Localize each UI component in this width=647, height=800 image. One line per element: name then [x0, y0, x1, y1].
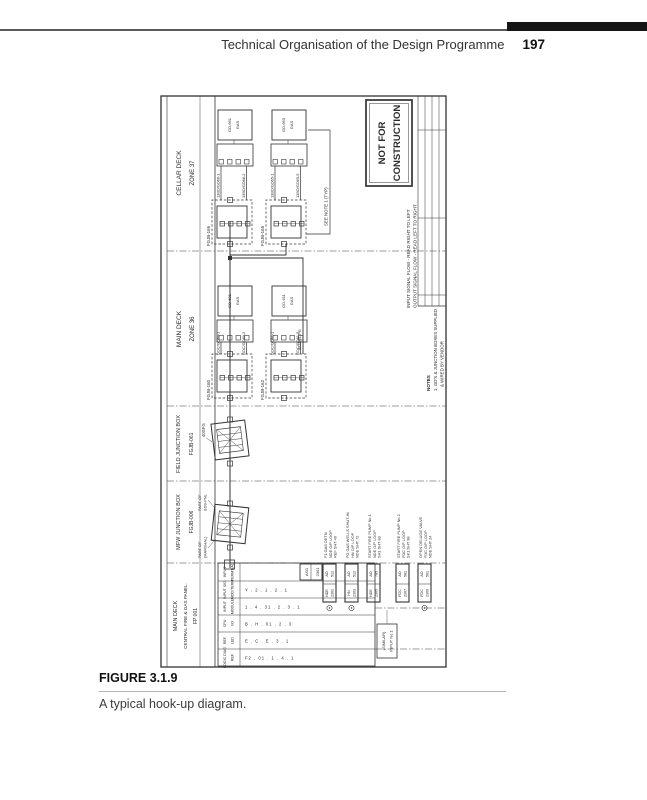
- io-desc: NDE SHT 72: [355, 536, 360, 558]
- notes-line2: & WIRED BY VENDOR: [440, 341, 445, 387]
- col-header: CPU: [223, 619, 227, 627]
- detector-tag: GD-661: [227, 117, 232, 132]
- io-cell: NDE: [369, 589, 373, 597]
- section-main-id: ZONE 36: [190, 316, 196, 342]
- section-field-id: FGJB-061: [189, 432, 195, 455]
- mfw-label-left2: (MARSHAL): [203, 536, 208, 558]
- book-page: Technical Organisation of the Design Pro…: [0, 0, 647, 800]
- similar-input-line1: (SIMILAR): [381, 631, 386, 650]
- jb-label: FGJB-160: [206, 379, 211, 400]
- cable-tag: GDC/GD60-2: [241, 332, 246, 355]
- revision-strip: [418, 96, 446, 306]
- cable-tag: 13BD/GD65-5: [295, 174, 300, 198]
- running-header: Technical Organisation of the Design Pro…: [0, 37, 545, 52]
- col-values: Y . 2 . 1 . 2 . 1: [245, 588, 288, 593]
- see-note-label: SEE NOTE 1 (TYP): [324, 187, 329, 226]
- col-header: LED: [231, 637, 235, 644]
- running-header-title: Technical Organisation of the Design Pro…: [221, 37, 504, 52]
- flow-note-input: INPUT SIGNAL FLOW - READ RIGHT TO LEFT: [406, 209, 411, 308]
- jb-label: FGJB-162: [260, 379, 265, 400]
- section-cellar-id: ZONE 37: [190, 160, 196, 186]
- col-values: 1 . 4 . 31 . 2 . 3 . 1: [245, 605, 301, 610]
- io-cell: 2303: [353, 589, 357, 597]
- caption-rule: [99, 691, 506, 692]
- drawing-border: [161, 96, 446, 667]
- io-cell: FDC: [398, 589, 402, 597]
- io-cell: AO: [347, 571, 351, 576]
- mfw-label-left1: PART OF: [197, 541, 202, 558]
- io-cell: FDC: [420, 589, 424, 597]
- col-header: INPUT SIG.: [223, 580, 227, 599]
- location-header-strip: MAIN DECK CENTRAL FIRE & GAS PANEL. FP 0…: [173, 150, 199, 649]
- col-header: MOD/TERM: [231, 580, 235, 600]
- io-cell: NDE: [325, 589, 329, 597]
- device-group-cellar-b: FGJB-165 13BD/GD65-1 13BD/GD65-5 GD-663 …: [260, 110, 307, 247]
- section-field-name: FIELD JUNCTION BOX: [176, 415, 182, 473]
- io-cell: 512: [353, 571, 357, 577]
- io-cell: AO: [369, 571, 373, 576]
- io-desc: SK1 SHT 98: [406, 536, 411, 558]
- signal-flow-notes: INPUT SIGNAL FLOW - READ RIGHT TO LEFT O…: [406, 204, 418, 308]
- figure-label: FIGURE 3.1.9: [99, 671, 178, 685]
- io-desc: REF SHT 40: [333, 535, 338, 558]
- notes-line1: 1. GD'S & JUNCTION BOXES SUPPLIED: [433, 309, 438, 391]
- terminal-box-id: AI01: [304, 567, 309, 576]
- io-desc: SH1 SHT 83: [377, 536, 382, 558]
- col-values: E . C . E . 3 . 1: [245, 639, 289, 644]
- header-rule: [0, 29, 507, 31]
- col-values: F2 . 01 . 1 . 4 . 1: [245, 656, 295, 661]
- cable-tag: 13BD/GD66-2: [241, 174, 246, 198]
- io-cell: 512: [331, 571, 335, 577]
- detector-service: GAS: [235, 120, 240, 129]
- io-cell: 581: [404, 571, 408, 577]
- section-mfw-id: FGJB-006: [189, 510, 195, 533]
- notes-block: NOTES 1. GD'S & JUNCTION BOXES SUPPLIED …: [426, 309, 445, 391]
- mfw-label-right2: BDS-PNL: [203, 493, 208, 511]
- section-panel-deck: MAIN DECK: [173, 600, 179, 631]
- io-cell: HN: [347, 590, 351, 596]
- panel-termination-table: LOGIC DIAG REF REF LED CPU I/O INPUT MOD…: [218, 563, 397, 668]
- notes-title: NOTES: [426, 375, 431, 391]
- io-cell: AO: [325, 571, 329, 576]
- mfw-junction-box: PART OF (MARSHAL) PART OF BDS-PNL: [197, 493, 249, 558]
- detector-service: GAS: [235, 296, 240, 305]
- device-group-cellar-a: FGJB-166 13BD/GD66-1 13BD/GD66-2 GD-661 …: [206, 110, 253, 247]
- detector-service: GAS: [289, 120, 294, 129]
- io-cell: 561: [426, 571, 430, 577]
- io-cell: 2307: [404, 589, 408, 597]
- page-number: 197: [522, 37, 545, 52]
- cable-tag: 13BD/GD65-1: [269, 174, 274, 198]
- rotated-drawing: MAIN DECK CENTRAL FIRE & GAS PANEL. FP 0…: [160, 95, 447, 668]
- section-main-name: MAIN DECK: [176, 310, 183, 347]
- io-cell: AO: [398, 571, 402, 576]
- figure-caption: A typical hook-up diagram.: [99, 697, 246, 711]
- col-header: TERM'NAL: [231, 563, 235, 581]
- cable-tag: 13BD/GD66-1: [215, 174, 220, 198]
- col-header: INPUT: [223, 600, 227, 612]
- io-cell: 2301: [331, 589, 335, 597]
- col-header: REF: [223, 636, 227, 644]
- hookup-diagram-svg: MAIN DECK CENTRAL FIRE & GAS PANEL. FP 0…: [160, 95, 447, 668]
- figure-area: MAIN DECK CENTRAL FIRE & GAS PANEL. FP 0…: [160, 95, 447, 668]
- col-header: MODULE: [231, 598, 235, 614]
- io-desc: NDE SHT 24: [428, 535, 433, 558]
- field-junction-box: 40GFG: [201, 417, 249, 466]
- similar-input-line2: INPUT No.1: [389, 629, 394, 651]
- terminal-box-no: 2301: [315, 567, 320, 577]
- not-for-construction-stamp: NOT FOR CONSTRUCTION: [366, 100, 412, 186]
- col-header: INPUT: [223, 566, 227, 578]
- detector-tag: GD-601: [227, 293, 232, 308]
- similar-input-box: [377, 624, 397, 658]
- col-values: B . H . 01 . 2 . 3: [245, 622, 292, 627]
- col-header: REF: [231, 653, 235, 661]
- section-panel-name: CENTRAL FIRE & GAS PANEL.: [183, 583, 188, 649]
- detector-tag: GD-611: [281, 293, 286, 307]
- section-panel-id: FP 001: [193, 608, 199, 624]
- section-mfw-name: MFW JUNCTION BOX: [176, 494, 182, 550]
- detector-service: GAS: [289, 296, 294, 305]
- mfw-label-right1: PART OF: [197, 494, 202, 511]
- field-jb-cable-tag: 40GFG: [201, 423, 206, 437]
- stamp-line2: CONSTRUCTION: [392, 105, 403, 182]
- io-cell: 785: [375, 571, 379, 577]
- jb-label: FGJB-165: [260, 225, 265, 246]
- io-cell: AO: [420, 571, 424, 576]
- section-cellar-name: CELLAR DECK: [176, 150, 183, 196]
- flow-note-output: OUTPUT SIGNAL FLOW - READ LEFT TO RIGHT: [413, 204, 418, 308]
- detector-tag: GD-663: [281, 117, 286, 132]
- jb-label: FGJB-166: [206, 225, 211, 246]
- stamp-line1: NOT FOR: [377, 121, 388, 164]
- cable-tag: GDC/GD61-5: [295, 332, 300, 355]
- col-header: LOGIC DIAG: [223, 647, 227, 668]
- io-cell: 2309: [426, 589, 430, 597]
- io-points: NDE 2301 AO 512 F1 GAS DETN NDE O/P LOOP…: [323, 512, 433, 610]
- cable-tag: GDC/GD60-1: [215, 332, 220, 355]
- header-black-bar: [507, 22, 647, 31]
- cable-tag: GDC/GD61-1: [269, 332, 274, 355]
- io-cell: 2305: [375, 589, 379, 597]
- col-header: I/O: [231, 621, 235, 626]
